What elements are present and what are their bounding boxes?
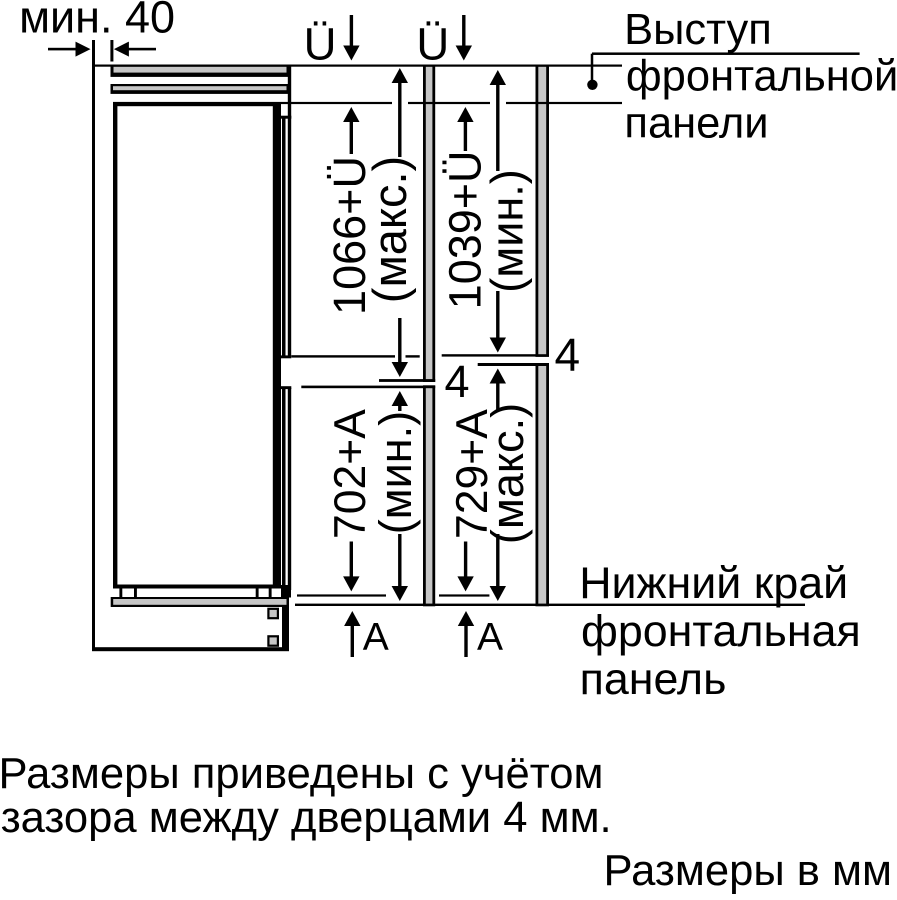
svg-text:зазора между дверцами 4 мм.: зазора между дверцами 4 мм. — [1, 794, 612, 842]
svg-text:Нижний край: Нижний край — [579, 558, 848, 608]
svg-text:4: 4 — [444, 356, 469, 407]
svg-text:(мин.): (мин.) — [370, 411, 421, 534]
svg-text:мин. 40: мин. 40 — [19, 0, 175, 43]
svg-text:Выступ: Выступ — [624, 6, 772, 54]
svg-text:Размеры в мм: Размеры в мм — [604, 847, 893, 895]
svg-text:702+А: 702+А — [326, 409, 375, 539]
svg-text:Ü: Ü — [416, 19, 449, 70]
svg-text:фронтальной: фронтальной — [626, 53, 897, 101]
svg-text:А: А — [363, 616, 389, 659]
svg-text:Размеры приведены с учётом: Размеры приведены с учётом — [0, 750, 604, 798]
svg-text:(макс.): (макс.) — [363, 156, 416, 303]
svg-text:панели: панели — [624, 100, 768, 148]
svg-text:панель: панель — [580, 654, 727, 704]
svg-text:(макс.): (макс.) — [482, 403, 533, 544]
svg-text:А: А — [477, 616, 503, 659]
svg-text:фронтальная: фронтальная — [581, 606, 861, 656]
svg-text:(мин.): (мин.) — [481, 169, 532, 292]
svg-text:Ü: Ü — [304, 19, 337, 70]
svg-text:4: 4 — [555, 329, 581, 381]
